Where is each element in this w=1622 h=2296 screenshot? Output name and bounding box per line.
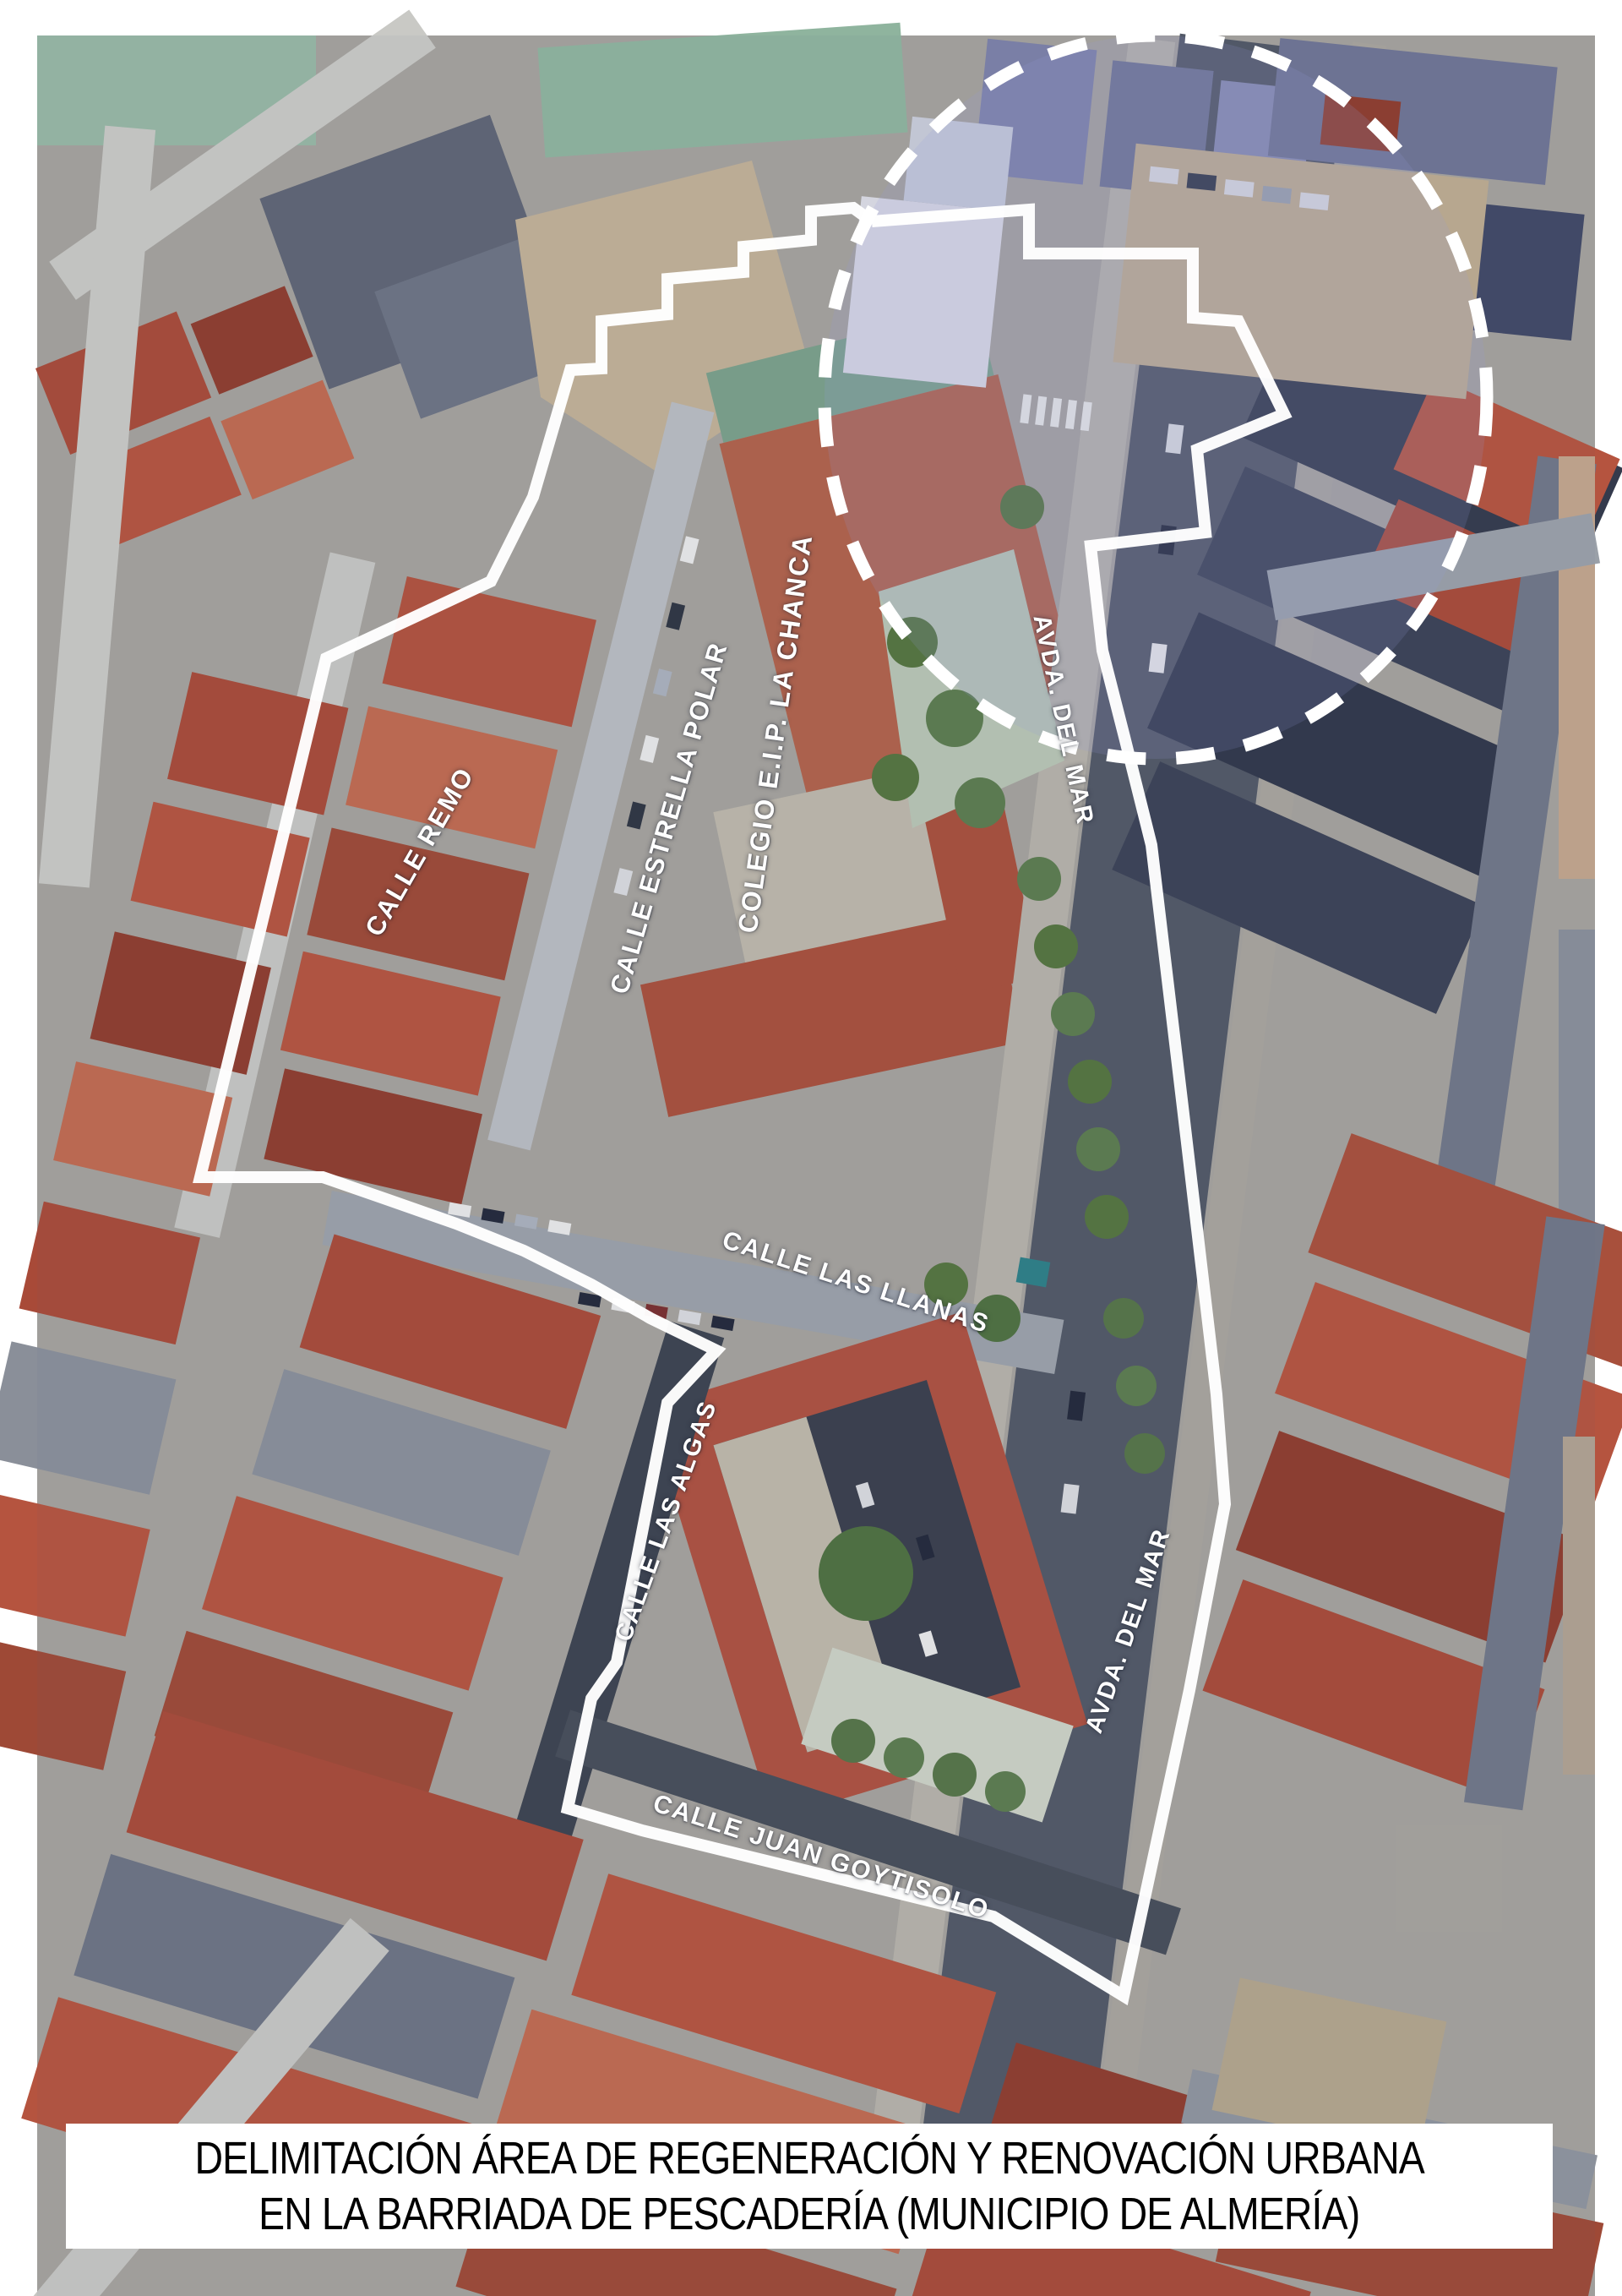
- aerial-map: CALLE REMOCALLE ESTRELLA POLARCOLEGIO E.…: [0, 0, 1622, 2296]
- study-area-dashed-circle: [825, 35, 1487, 759]
- caption-line-1: DELIMITACIÓN ÁREA DE REGENERACIÓN Y RENO…: [194, 2132, 1423, 2184]
- page: CALLE REMOCALLE ESTRELLA POLARCOLEGIO E.…: [0, 0, 1622, 2296]
- caption-box: DELIMITACIÓN ÁREA DE REGENERACIÓN Y RENO…: [66, 2124, 1553, 2249]
- caption-line-2: EN LA BARRIADA DE PESCADERÍA (MUNICIPIO …: [259, 2188, 1359, 2240]
- satellite-imagery: [0, 0, 1622, 2296]
